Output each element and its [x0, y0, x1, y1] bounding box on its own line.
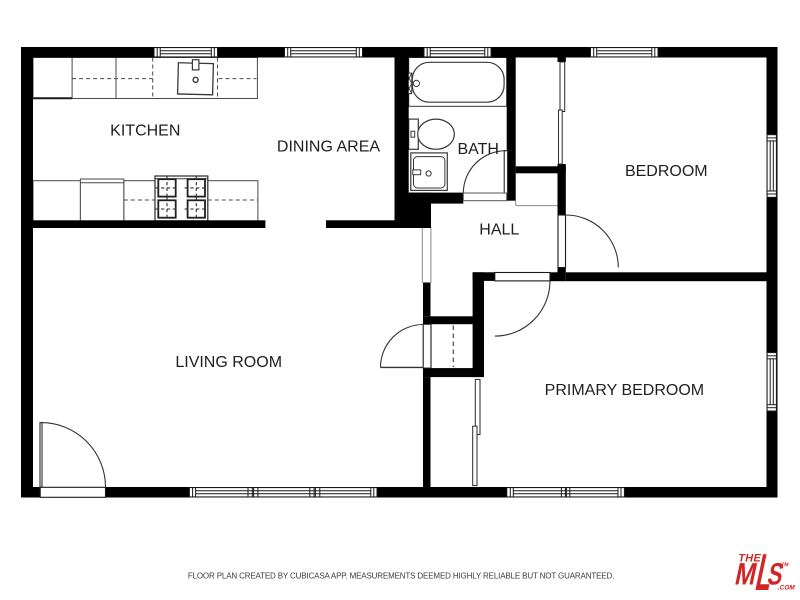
svg-text:BATH: BATH: [457, 141, 498, 158]
svg-text:.COM: .COM: [777, 585, 796, 592]
svg-text:PRIMARY BEDROOM: PRIMARY BEDROOM: [545, 382, 704, 399]
svg-text:HALL: HALL: [479, 222, 519, 239]
svg-text:FLOOR PLAN CREATED BY CUBICASA: FLOOR PLAN CREATED BY CUBICASA APP. MEAS…: [188, 572, 614, 581]
svg-text:KITCHEN: KITCHEN: [110, 123, 180, 140]
svg-text:DINING AREA: DINING AREA: [277, 138, 380, 155]
svg-text:TM: TM: [781, 562, 789, 568]
svg-text:BEDROOM: BEDROOM: [625, 163, 708, 180]
svg-text:LIVING ROOM: LIVING ROOM: [175, 354, 282, 371]
